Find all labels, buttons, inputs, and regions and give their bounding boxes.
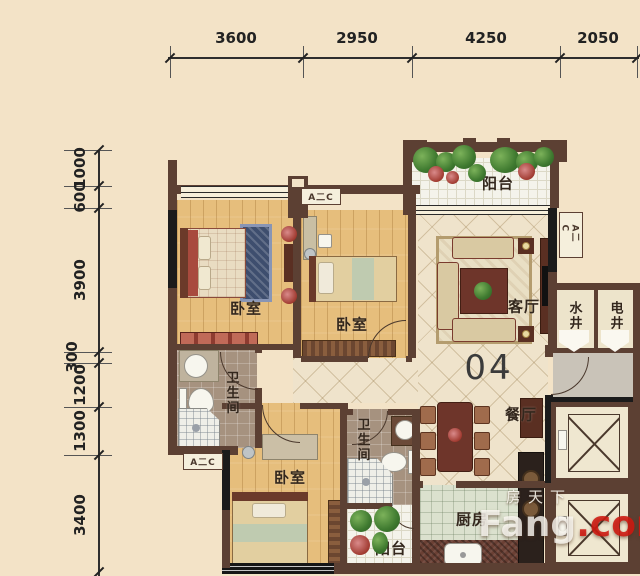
ac-unit-label: A二C [560, 224, 583, 246]
ac-unit-box: A二C [183, 453, 223, 470]
flower-pot [281, 226, 297, 242]
dining-chair [420, 406, 436, 424]
sofa [452, 237, 514, 259]
ac-unit-label: A二C [308, 190, 334, 203]
tv-stand [284, 244, 293, 282]
shower-drain [362, 478, 370, 486]
ac-unit-box: A二C [301, 188, 341, 205]
centerpiece [448, 428, 462, 442]
flower-plant [446, 171, 459, 184]
elevator-1-car [568, 414, 620, 472]
shower-drain [192, 424, 200, 432]
bed-headboard [309, 256, 316, 302]
dining-room-label: 餐厅 [505, 404, 537, 425]
window [181, 186, 291, 198]
window [222, 563, 334, 574]
ac-unit-box: A二C [559, 212, 583, 258]
sink-drain [460, 552, 466, 558]
basin [184, 354, 208, 378]
pillow [198, 266, 211, 290]
electric-shaft-label: 电井 [606, 301, 625, 331]
dining-chair [474, 432, 490, 450]
dim-left-1300: 1300 [71, 410, 89, 452]
balcony-top-label: 阳台 [482, 173, 514, 194]
lamp [522, 330, 530, 338]
watermark-fang: Fang [478, 504, 576, 545]
pillow [252, 503, 286, 518]
table-plant [474, 282, 492, 300]
dining-chair [420, 432, 436, 450]
stool [242, 446, 255, 459]
watermark-brand: Fang.com [478, 507, 640, 543]
unit-number: 04 [464, 348, 513, 388]
lamp [522, 242, 530, 250]
plant [372, 532, 388, 554]
bed-drape [188, 230, 198, 296]
sofa [452, 318, 516, 342]
blanket [352, 258, 374, 300]
dim-top-2950: 2950 [336, 29, 378, 47]
bedroom-top-left-label: 卧室 [230, 298, 262, 319]
dining-chair [474, 458, 490, 476]
dim-top-2050: 2050 [577, 29, 619, 47]
dim-left-3900: 3900 [71, 259, 89, 301]
flower-pot [281, 288, 297, 304]
dining-chair [420, 458, 436, 476]
pillow [318, 262, 334, 294]
flower-plant [518, 163, 535, 180]
bed-headboard [180, 228, 188, 298]
plant [374, 506, 400, 532]
elevator-1-door [558, 430, 567, 450]
bedroom-top-middle-label: 卧室 [336, 314, 368, 335]
bedroom-bottom-label: 卧室 [274, 467, 306, 488]
flower-plant [428, 166, 444, 182]
water-shaft-label: 水井 [565, 301, 584, 331]
watermark: 房天下 Fang.com [478, 490, 640, 543]
living-room-label: 客厅 [508, 296, 540, 317]
wall-cabinet [318, 234, 332, 248]
dim-top-3600: 3600 [215, 29, 257, 47]
floorplan: 3600 2950 4250 2050 1000 600 3900 300 12… [0, 0, 640, 576]
flower-plant [350, 535, 370, 555]
plant [350, 510, 372, 532]
ac-unit-label: A二C [190, 455, 216, 468]
window [411, 205, 550, 215]
dining-chair [474, 406, 490, 424]
bed-headboard [232, 492, 308, 501]
dim-left-600: 600 [71, 181, 89, 212]
dim-left-1200: 1200 [71, 364, 89, 406]
hallway [293, 358, 420, 403]
watermark-cn: 房天下 [506, 490, 640, 505]
dim-top-4250: 4250 [465, 29, 507, 47]
plant [468, 164, 486, 182]
blanket [233, 524, 307, 542]
watermark-dotcom: .com [576, 504, 640, 545]
pillow [198, 236, 211, 260]
dim-left-3400: 3400 [71, 494, 89, 536]
plant [534, 147, 554, 167]
